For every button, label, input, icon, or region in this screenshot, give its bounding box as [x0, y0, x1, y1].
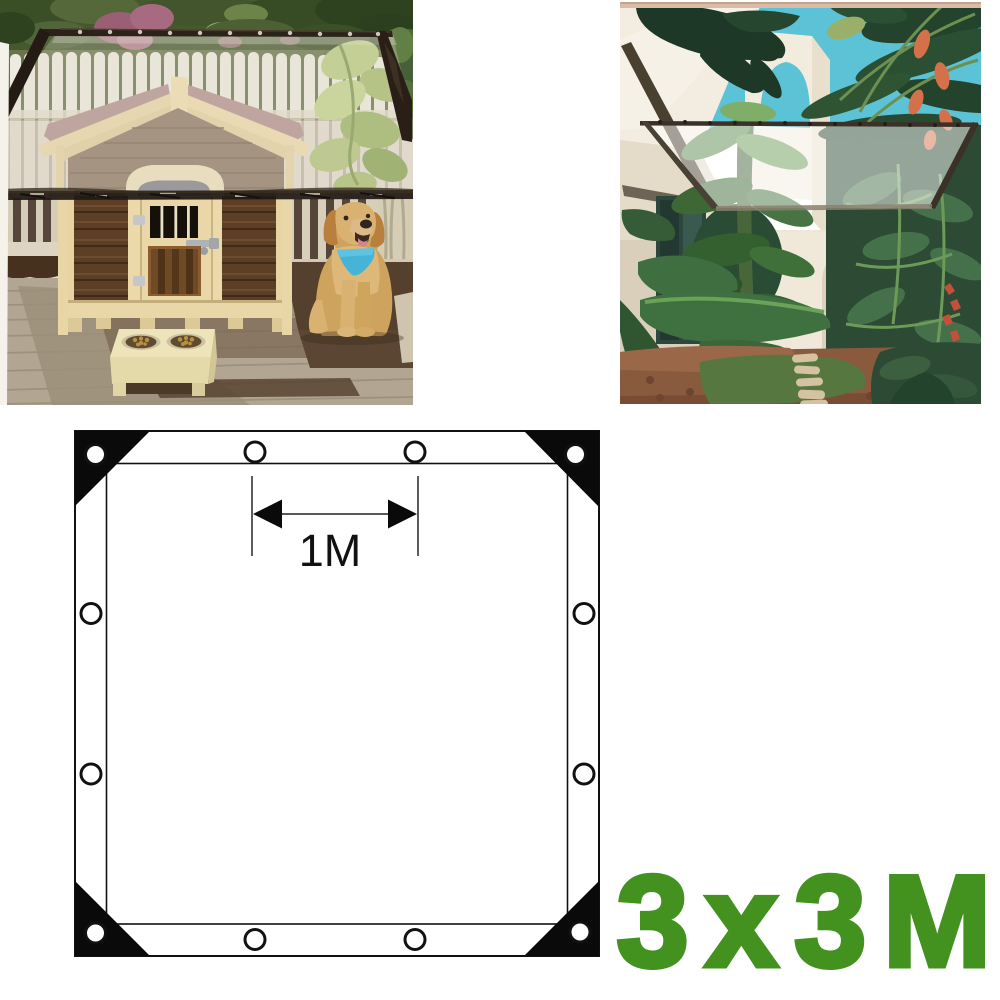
- svg-text:3x3M: 3x3M: [617, 848, 1000, 994]
- svg-text:1M: 1M: [299, 525, 362, 576]
